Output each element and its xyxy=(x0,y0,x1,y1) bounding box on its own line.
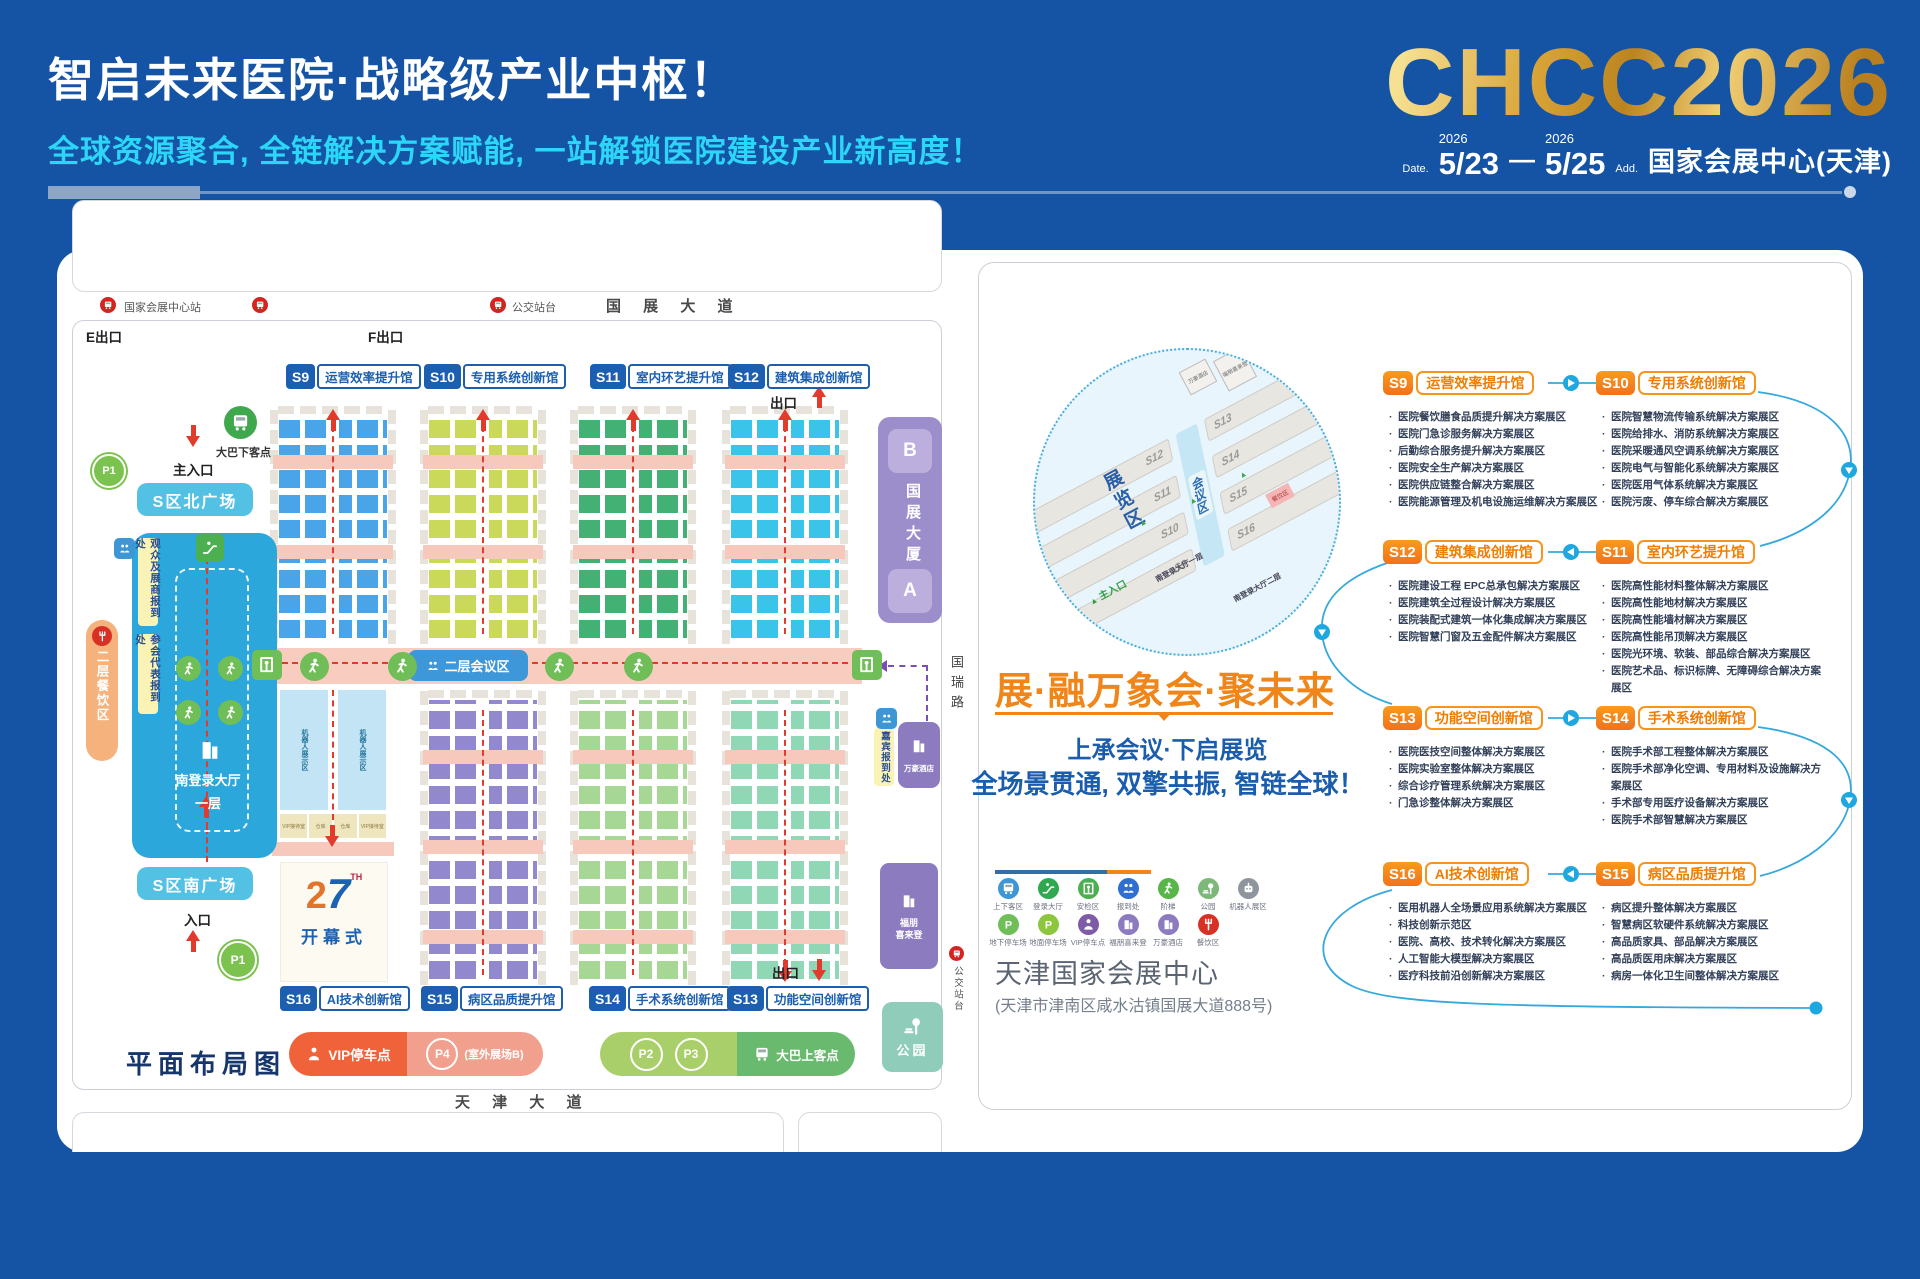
section-header-S9: S9运营效率提升馆 xyxy=(1383,371,1534,395)
tower-b: B xyxy=(888,429,932,473)
section-item: 后勤综合服务提升解决方案展区 xyxy=(1388,443,1610,460)
hall-badge: S12 xyxy=(728,364,765,389)
bus-drop-label: 大巴下客点 xyxy=(216,444,271,460)
section-header-S16: S16AI技术创新馆 xyxy=(1383,862,1529,886)
hall-badge: S16 xyxy=(280,986,317,1011)
south-lobby-name-wrap: 南登录大厅 一层 xyxy=(148,770,268,812)
delegate-registration: 参会代表报到处 xyxy=(138,634,158,714)
walk-icon xyxy=(218,656,243,681)
conference-2f-label: 二层会议区 xyxy=(444,656,509,675)
section-item: 综合诊疗管理系统解决方案展区 xyxy=(1388,778,1610,795)
entrance-label: 入口 xyxy=(184,909,211,929)
section-item: 医院污废、停车综合解决方案展区 xyxy=(1601,494,1823,511)
section-header-S13: S13功能空间创新馆 xyxy=(1383,706,1543,730)
hall-name: 建筑集成创新馆 xyxy=(767,364,871,389)
section-item: 医院供应链整合解决方案展区 xyxy=(1388,477,1610,494)
park-block: > 公园 xyxy=(882,1002,943,1072)
section-header-S10: S10专用系统创新馆 xyxy=(1596,371,1756,395)
hall-name: 功能空间创新馆 xyxy=(766,986,870,1011)
section-badge: S11 xyxy=(1596,540,1634,564)
section-item: 医院智慧门窗及五金配件解决方案展区 xyxy=(1388,629,1610,646)
section-item: 医院能源管理及机电设施运维解决方案展区 xyxy=(1388,494,1610,511)
section-name: 运营效率提升馆 xyxy=(1416,371,1534,395)
section-name: AI技术创新馆 xyxy=(1425,862,1529,886)
restroom-icon xyxy=(876,708,897,729)
section-list-S10: 医院智慧物流传输系统解决方案展区医院给排水、消防系统解决方案展区医院采暖通风空调… xyxy=(1601,409,1823,511)
section-item: 智慧病区软硬件系统解决方案展区 xyxy=(1601,917,1823,934)
tower-label: 国展大厦 xyxy=(902,483,923,567)
section-header-S11: S11室内环艺提升馆 xyxy=(1596,540,1755,564)
hall-label-S16: S16AI技术创新馆 xyxy=(280,986,410,1011)
p1-icon: P1 xyxy=(219,941,257,979)
section-header-S14: S14手术系统创新馆 xyxy=(1596,706,1756,730)
section-item: 医院、高校、技术转化解决方案展区 xyxy=(1388,934,1610,951)
section-item: 医院建设工程 EPC总承包解决方案展区 xyxy=(1388,578,1610,595)
section-name: 功能空间创新馆 xyxy=(1425,706,1543,730)
conference-2f-badge: > 二层会议区 xyxy=(408,650,528,681)
bus-drop-icon xyxy=(224,406,257,439)
section-header-S12: S12建筑集成创新馆 xyxy=(1383,540,1543,564)
section-item: 医院高性能地材解决方案展区 xyxy=(1601,595,1823,612)
section-badge: S10 xyxy=(1596,371,1635,395)
exit-top-arrow xyxy=(812,386,826,409)
section-item: 病房一体化卫生间整体解决方案展区 xyxy=(1601,968,1823,985)
sheraton-hotel: >福朋喜来登 xyxy=(880,863,938,969)
bus-pickup-pill: > 大巴上客点 xyxy=(737,1032,855,1076)
section-item: 高品质医用床解决方案展区 xyxy=(1601,951,1823,968)
section-list-S11: 医院高性能材料整体解决方案展区医院高性能地材解决方案展区医院高性能墙材解决方案展… xyxy=(1601,578,1823,697)
section-item: 医疗科技前沿创新解决方案展区 xyxy=(1388,968,1610,985)
section-item: 医院高性能吊顶解决方案展区 xyxy=(1601,629,1823,646)
hall-name: 室内环艺提升馆 xyxy=(628,364,732,389)
section-item: 医院给排水、消防系统解决方案展区 xyxy=(1601,426,1823,443)
hall-badge: S13 xyxy=(727,986,764,1011)
metro-icon xyxy=(100,297,116,313)
south-plaza: S区南广场 xyxy=(137,867,253,900)
section-name: 室内环艺提升馆 xyxy=(1637,540,1755,564)
hall-badge: S9 xyxy=(286,364,315,389)
metro-icon xyxy=(252,297,268,313)
section-item: 医院高性能材料整体解决方案展区 xyxy=(1601,578,1823,595)
south-lobby-floor: 一层 xyxy=(148,793,268,812)
section-item: 医院艺术品、标识标牌、无障碍综合解决方案展区 xyxy=(1601,663,1823,697)
section-item: 医院手术部净化空调、专用材料及设施解决方案展区 xyxy=(1601,761,1823,795)
tower-a: A xyxy=(888,569,932,613)
south-lobby-name: 南登录大厅 xyxy=(148,770,268,789)
section-list-S12: 医院建设工程 EPC总承包解决方案展区医院建筑全过程设计解决方案展区医院装配式建… xyxy=(1388,578,1610,646)
section-item: 医院高性能墙材解决方案展区 xyxy=(1601,612,1823,629)
dining-2f-label: 二层餐饮区 xyxy=(93,650,112,723)
marriott-hotel: >万豪酒店 xyxy=(898,722,940,788)
hall-name: AI技术创新馆 xyxy=(319,986,410,1011)
walk-icon xyxy=(176,656,201,681)
vip-parking-label: VIP停车点 xyxy=(328,1044,390,1064)
restroom-icon xyxy=(114,538,135,559)
section-badge: S16 xyxy=(1383,862,1422,886)
bus-stop-icon xyxy=(490,297,506,313)
escalator-icon xyxy=(196,534,224,562)
section-name: 病区品质提升馆 xyxy=(1638,862,1756,886)
exit-top-label: 出口 xyxy=(770,392,797,412)
sheraton-label: 福朋喜来登 xyxy=(895,918,922,941)
guest-registration: 嘉宾报到处 xyxy=(874,728,894,786)
p4-note: (室外展场B) xyxy=(464,1046,523,1062)
p1-icon: P1 xyxy=(92,454,126,488)
walk-icon xyxy=(388,652,417,681)
poster: 智启未来医院·战略级产业中枢！ 全球资源聚合, 全链解决方案赋能, 一站解锁医院… xyxy=(0,0,1920,1279)
hall-badge: S10 xyxy=(424,364,461,389)
walk-icon xyxy=(176,700,201,725)
section-list-S13: 医院医技空间整体解决方案展区医院实验室整体解决方案展区综合诊疗管理系统解决方案展… xyxy=(1388,744,1610,812)
section-name: 手术系统创新馆 xyxy=(1638,706,1756,730)
section-name: 专用系统创新馆 xyxy=(1638,371,1756,395)
hall-label-S9: S9运营效率提升馆 xyxy=(286,364,421,389)
walk-icon xyxy=(624,652,653,681)
p4-pill: P4 (室外展场B) xyxy=(407,1032,543,1076)
section-item: 医院实验室整体解决方案展区 xyxy=(1388,761,1610,778)
exit-bottom-arrow xyxy=(812,958,826,981)
north-plaza: S区北广场 xyxy=(137,483,253,516)
hall-name: 手术系统创新馆 xyxy=(628,986,732,1011)
hall-label-S14: S14手术系统创新馆 xyxy=(589,986,731,1011)
hall-label-S10: S10专用系统创新馆 xyxy=(424,364,566,389)
section-item: 医院智慧物流传输系统解决方案展区 xyxy=(1601,409,1823,426)
dining-2f: 二层餐饮区 xyxy=(86,620,118,761)
hall-badge: S15 xyxy=(421,986,458,1011)
walk-icon xyxy=(218,700,243,725)
hall-badge: S14 xyxy=(589,986,626,1011)
vip-parking-pill: > VIP停车点 xyxy=(289,1032,407,1076)
section-item: 医院电气与智能化系统解决方案展区 xyxy=(1601,460,1823,477)
hall-name: 运营效率提升馆 xyxy=(317,364,421,389)
section-item: 人工智能大模型解决方案展区 xyxy=(1388,951,1610,968)
bus-stop-right-icon xyxy=(949,946,964,961)
entrance-arrow xyxy=(186,930,200,953)
p2p3-pill: P2 P3 xyxy=(600,1032,737,1076)
walk-icon xyxy=(545,652,574,681)
hall-name: 病区品质提升馆 xyxy=(460,986,564,1011)
visitor-registration: 观众及展商报到处 xyxy=(138,538,158,626)
main-entrance-arrow xyxy=(186,424,200,447)
hall-label-S15: S15病区品质提升馆 xyxy=(421,986,563,1011)
section-badge: S14 xyxy=(1596,706,1635,730)
hall-badge: S11 xyxy=(590,364,626,389)
p2-badge: P2 xyxy=(630,1038,663,1071)
security-gate-icon xyxy=(252,650,282,680)
section-list-S9: 医院餐饮膳食品质提升解决方案展区医院门急诊服务解决方案展区后勤综合服务提升解决方… xyxy=(1388,409,1610,511)
section-item: 医院装配式建筑一体化集成解决方案展区 xyxy=(1388,612,1610,629)
section-header-S15: S15病区品质提升馆 xyxy=(1596,862,1756,886)
section-badge: S9 xyxy=(1383,371,1413,395)
security-gate-icon xyxy=(852,650,882,680)
section-item: 医院手术部工程整体解决方案展区 xyxy=(1601,744,1823,761)
section-item: 医院医技空间整体解决方案展区 xyxy=(1388,744,1610,761)
section-item: 医院门急诊服务解决方案展区 xyxy=(1388,426,1610,443)
section-item: 医院建筑全过程设计解决方案展区 xyxy=(1388,595,1610,612)
section-item: 医用机器人全场景应用系统解决方案展区 xyxy=(1388,900,1610,917)
opening-route-arrow xyxy=(325,824,339,847)
hall-name: 专用系统创新馆 xyxy=(463,364,567,389)
hall-label-S11: S11室内环艺提升馆 xyxy=(590,364,732,389)
marriott-label: 万豪酒店 xyxy=(904,763,934,774)
tower-block: B 国展大厦 A xyxy=(878,417,942,623)
lobby-building-icon xyxy=(196,736,224,764)
section-badge: S13 xyxy=(1383,706,1422,730)
hall-label-S12: S12建筑集成创新馆 xyxy=(728,364,870,389)
section-item: 医院餐饮膳食品质提升解决方案展区 xyxy=(1388,409,1610,426)
walk-icon xyxy=(300,652,329,681)
exit-bottom-label: 出口 xyxy=(772,962,799,982)
section-item: 科技创新示范区 xyxy=(1388,917,1610,934)
section-item: 手术部专用医疗设备解决方案展区 xyxy=(1601,795,1823,812)
p3-badge: P3 xyxy=(675,1038,708,1071)
section-item: 医院光环境、软装、部品综合解决方案展区 xyxy=(1601,646,1823,663)
section-name: 建筑集成创新馆 xyxy=(1425,540,1543,564)
section-item: 医院采暖通风空调系统解决方案展区 xyxy=(1601,443,1823,460)
section-item: 病区提升整体解决方案展区 xyxy=(1601,900,1823,917)
section-list-S14: 医院手术部工程整体解决方案展区医院手术部净化空调、专用材料及设施解决方案展区手术… xyxy=(1601,744,1823,829)
bus-pickup-label: 大巴上客点 xyxy=(776,1045,839,1064)
p4-badge: P4 xyxy=(426,1038,458,1070)
section-list-S16: 医用机器人全场景应用系统解决方案展区科技创新示范区医院、高校、技术转化解决方案展… xyxy=(1388,900,1610,985)
section-item: 高品质家具、部品解决方案展区 xyxy=(1601,934,1823,951)
section-badge: S12 xyxy=(1383,540,1422,564)
section-item: 医院手术部智慧解决方案展区 xyxy=(1601,812,1823,829)
section-item: 医院安全生产解决方案展区 xyxy=(1388,460,1610,477)
section-item: 门急诊整体解决方案展区 xyxy=(1388,795,1610,812)
main-entrance-label: 主入口 xyxy=(173,459,214,479)
section-list-S15: 病区提升整体解决方案展区智慧病区软硬件系统解决方案展区高品质家具、部品解决方案展… xyxy=(1601,900,1823,985)
park-label: 公园 xyxy=(896,1040,928,1059)
hall-label-S13: S13功能空间创新馆 xyxy=(727,986,869,1011)
section-badge: S15 xyxy=(1596,862,1635,886)
section-item: 医院医用气体系统解决方案展区 xyxy=(1601,477,1823,494)
